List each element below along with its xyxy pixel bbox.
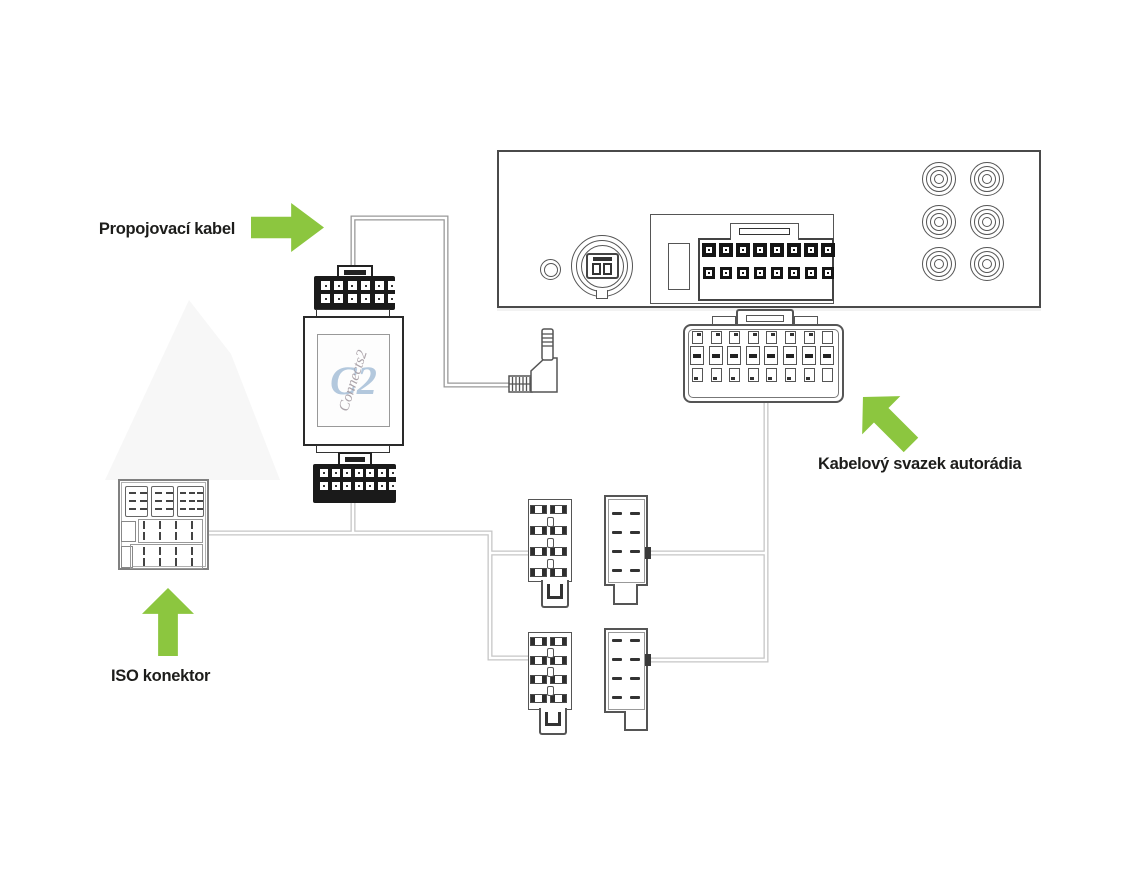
pin xyxy=(155,492,162,494)
pin xyxy=(690,346,704,365)
arrow-up-left-icon xyxy=(844,378,930,464)
pin xyxy=(804,368,815,382)
pin xyxy=(612,550,622,553)
pin xyxy=(612,531,622,534)
pin xyxy=(748,368,759,382)
female-iso-socket-2-tab xyxy=(624,711,648,731)
pin xyxy=(547,559,554,569)
pin xyxy=(321,281,330,290)
pin xyxy=(764,346,778,365)
pin xyxy=(180,500,186,502)
pin xyxy=(709,346,723,365)
pin xyxy=(530,656,547,665)
adapter-box: C2 Connects2 xyxy=(303,316,404,446)
pin xyxy=(753,243,767,257)
iso-left-notch xyxy=(121,521,136,542)
pin xyxy=(129,500,136,502)
label-radio-harness: Kabelový svazek autorádia xyxy=(818,455,1021,474)
pin xyxy=(737,267,749,279)
pin xyxy=(711,331,722,344)
pin xyxy=(389,469,397,477)
pin xyxy=(166,500,173,502)
pin xyxy=(630,677,640,680)
iso-top-block-pins xyxy=(155,492,173,510)
pin xyxy=(530,547,547,556)
pin xyxy=(802,346,816,365)
adapter-label: C2 Connects2 xyxy=(317,334,390,427)
pin xyxy=(550,505,567,514)
female-iso-socket-1-slots xyxy=(612,512,640,572)
pin xyxy=(191,558,193,566)
pin xyxy=(530,526,547,535)
pin xyxy=(175,532,177,540)
pin xyxy=(180,508,186,510)
pin xyxy=(547,686,554,696)
iso-top-block-pins xyxy=(180,492,203,510)
pin xyxy=(630,531,640,534)
pin xyxy=(320,482,328,490)
background-watermark xyxy=(105,300,280,480)
pin xyxy=(378,469,386,477)
pin xyxy=(719,243,733,257)
harness-pin-row-top xyxy=(692,331,833,344)
pin xyxy=(785,331,796,344)
rca-jack xyxy=(922,162,956,196)
pin xyxy=(166,508,173,510)
iso-pin-grid-pins xyxy=(143,547,193,566)
pin xyxy=(159,521,161,529)
male-iso-plug-2-tab xyxy=(539,708,567,735)
pin xyxy=(191,547,193,555)
pin xyxy=(366,482,374,490)
harness-pin-row-bottom xyxy=(692,368,833,382)
pin xyxy=(612,696,622,699)
pin xyxy=(361,294,370,303)
pin xyxy=(612,512,622,515)
pin xyxy=(189,508,195,510)
pin xyxy=(766,331,777,344)
pin xyxy=(530,675,547,684)
male-iso-plug-1-tab xyxy=(541,580,569,608)
pin xyxy=(766,368,777,382)
pin xyxy=(771,267,783,279)
pin xyxy=(804,331,815,344)
pin xyxy=(530,694,547,703)
pin xyxy=(550,568,567,577)
female-iso-socket-1-cable-nub xyxy=(645,547,651,559)
rca-jack xyxy=(970,247,1004,281)
pin xyxy=(348,281,357,290)
pin xyxy=(804,243,818,257)
pin xyxy=(343,469,351,477)
pin xyxy=(366,469,374,477)
pin xyxy=(332,469,340,477)
pin xyxy=(378,482,386,490)
pin xyxy=(692,331,703,344)
antenna-jack-inner xyxy=(544,263,558,277)
pin xyxy=(630,696,640,699)
pin xyxy=(355,469,363,477)
pin xyxy=(530,568,547,577)
rca-jack xyxy=(922,205,956,239)
pin xyxy=(630,639,640,642)
pin xyxy=(788,267,800,279)
pin xyxy=(785,368,796,382)
radio-socket-tab xyxy=(730,223,799,240)
pin xyxy=(129,508,136,510)
pin xyxy=(189,492,195,494)
pin xyxy=(155,508,162,510)
pin xyxy=(822,368,833,382)
pin xyxy=(321,294,330,303)
pin xyxy=(754,267,766,279)
pin xyxy=(320,469,328,477)
pin xyxy=(822,331,833,344)
pin xyxy=(175,521,177,529)
rca-jack xyxy=(922,247,956,281)
pin xyxy=(388,281,397,290)
aux-jack-plug xyxy=(509,329,557,392)
female-iso-socket-2-slots xyxy=(612,639,640,699)
arrow-up-icon xyxy=(142,588,194,656)
male-iso-plug-1-slots xyxy=(547,517,554,569)
panel-slot xyxy=(668,243,690,290)
pin xyxy=(143,547,145,555)
pin xyxy=(822,267,834,279)
pin xyxy=(783,346,797,365)
pin xyxy=(189,500,195,502)
pin xyxy=(703,267,715,279)
pin xyxy=(334,281,343,290)
pin xyxy=(711,368,722,382)
pin xyxy=(547,667,554,677)
pin xyxy=(729,331,740,344)
pin xyxy=(355,482,363,490)
harness-pin-row-middle xyxy=(690,346,834,365)
pin xyxy=(143,558,145,566)
pin xyxy=(770,243,784,257)
pin xyxy=(612,639,622,642)
pin xyxy=(612,569,622,572)
pin xyxy=(143,521,145,529)
iso-pin-grid-pins xyxy=(143,521,193,540)
label-connection-cable: Propojovací kabel xyxy=(60,220,235,239)
pin xyxy=(175,558,177,566)
pin xyxy=(155,500,162,502)
label-iso-connector: ISO konektor xyxy=(111,667,210,686)
radio-socket-pin-row-bottom xyxy=(703,267,834,279)
pin xyxy=(702,243,716,257)
arrow-right-icon xyxy=(251,203,324,252)
pin xyxy=(375,294,384,303)
pin xyxy=(530,505,547,514)
pin xyxy=(736,243,750,257)
pin xyxy=(166,492,173,494)
pin xyxy=(630,569,640,572)
pin xyxy=(805,267,817,279)
pin xyxy=(348,294,357,303)
pin xyxy=(334,294,343,303)
female-iso-socket-1-tab xyxy=(613,584,638,605)
pin xyxy=(143,532,145,540)
pin xyxy=(727,346,741,365)
din-socket xyxy=(586,253,619,279)
pin xyxy=(180,492,186,494)
pin xyxy=(343,482,351,490)
pin xyxy=(720,267,732,279)
pin xyxy=(140,508,147,510)
pin xyxy=(729,368,740,382)
pin xyxy=(375,281,384,290)
pin xyxy=(140,492,147,494)
iso-top-block-pins xyxy=(129,492,147,510)
pin xyxy=(630,658,640,661)
pin xyxy=(550,637,567,646)
pin xyxy=(197,508,203,510)
adapter-top-connector-pins xyxy=(321,281,397,303)
radio-socket-pin-row-top xyxy=(702,243,835,257)
harness-latch-tab xyxy=(736,309,794,325)
din-notch xyxy=(596,290,608,299)
pin xyxy=(191,521,193,529)
pin xyxy=(787,243,801,257)
pin xyxy=(630,512,640,515)
pin xyxy=(630,550,640,553)
pin xyxy=(746,346,760,365)
antenna-jack-icon xyxy=(540,259,561,280)
male-iso-plug-2-slots xyxy=(547,648,554,696)
pin xyxy=(748,331,759,344)
pin xyxy=(159,558,161,566)
rca-jack xyxy=(970,162,1004,196)
car-radio-rear-panel xyxy=(497,150,1041,308)
rca-jack xyxy=(970,205,1004,239)
pin xyxy=(612,677,622,680)
pin xyxy=(612,658,622,661)
pin xyxy=(820,346,834,365)
pin xyxy=(547,648,554,658)
pin xyxy=(530,637,547,646)
pin xyxy=(547,517,554,527)
pin xyxy=(388,294,397,303)
pin xyxy=(159,547,161,555)
pin xyxy=(191,532,193,540)
pin xyxy=(361,281,370,290)
female-iso-socket-2-cable-nub xyxy=(645,654,651,666)
pin xyxy=(547,538,554,548)
pin xyxy=(140,500,147,502)
pin xyxy=(197,500,203,502)
pin xyxy=(692,368,703,382)
adapter-bottom-connector-pins xyxy=(320,469,397,490)
pin xyxy=(197,492,203,494)
pin xyxy=(821,243,835,257)
pin xyxy=(175,547,177,555)
wiring-diagram: Propojovací kabel Kabelový svazek autorá… xyxy=(0,0,1139,872)
pin xyxy=(129,492,136,494)
pin xyxy=(389,482,397,490)
pin xyxy=(159,532,161,540)
pin xyxy=(332,482,340,490)
